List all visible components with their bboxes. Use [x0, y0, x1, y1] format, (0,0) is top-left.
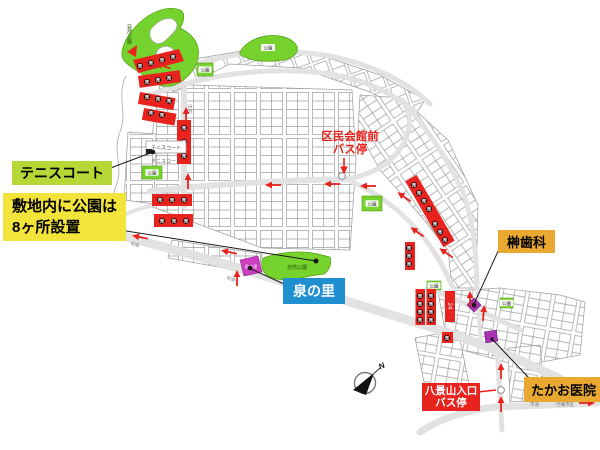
housing-estate-map: 自然公園 公園 自然公園 公園公園公園公園公園 泉の里 24 売売売売売売売売売…: [0, 0, 600, 450]
takao-clinic-callout: たかお医院: [524, 377, 600, 402]
kumin-hall-bus-stop-callout: 区民会館前 バス停: [316, 131, 384, 157]
hakkeizan-line1: 八景山入口: [422, 385, 480, 397]
parks-note-line1: 敷地内に公園は: [12, 196, 117, 217]
parks-note-line2: 8ヶ所設置: [12, 217, 117, 238]
tennis-court-plain-label: テニスコート: [151, 159, 181, 165]
kumin-line1: 区民会館前: [316, 131, 384, 144]
bus-stop-marker-kumin: [339, 173, 346, 180]
svg-text:市道: 市道: [530, 401, 539, 408]
izumi-no-sato-callout: 泉の里: [283, 278, 345, 304]
nature-park-label: 自然公園: [126, 23, 132, 45]
compass: N: [353, 361, 387, 395]
nature-park-south-label: 自然公園: [287, 264, 307, 271]
sakaki-dental-callout: 榊歯科: [498, 230, 555, 253]
takao-site-marker: [484, 330, 497, 343]
tennis-court-callout: テニスコート: [12, 161, 112, 185]
kumin-line2: バス停: [316, 144, 384, 157]
lot-24-label: 24: [446, 303, 452, 310]
parks-note-callout: 敷地内に公園は 8ヶ所設置: [3, 193, 126, 241]
hakkeizan-line2: バス停: [422, 397, 480, 409]
hakkeizan-bus-stop-callout: 八景山入口 バス停: [422, 383, 480, 411]
tennis-court-box-label: テニスコート: [151, 146, 181, 152]
parcel-grid-regions: [124, 48, 585, 402]
bus-stop-marker-hakkeizan: [498, 387, 505, 394]
svg-text:行幡市区: 行幡市区: [556, 401, 574, 408]
